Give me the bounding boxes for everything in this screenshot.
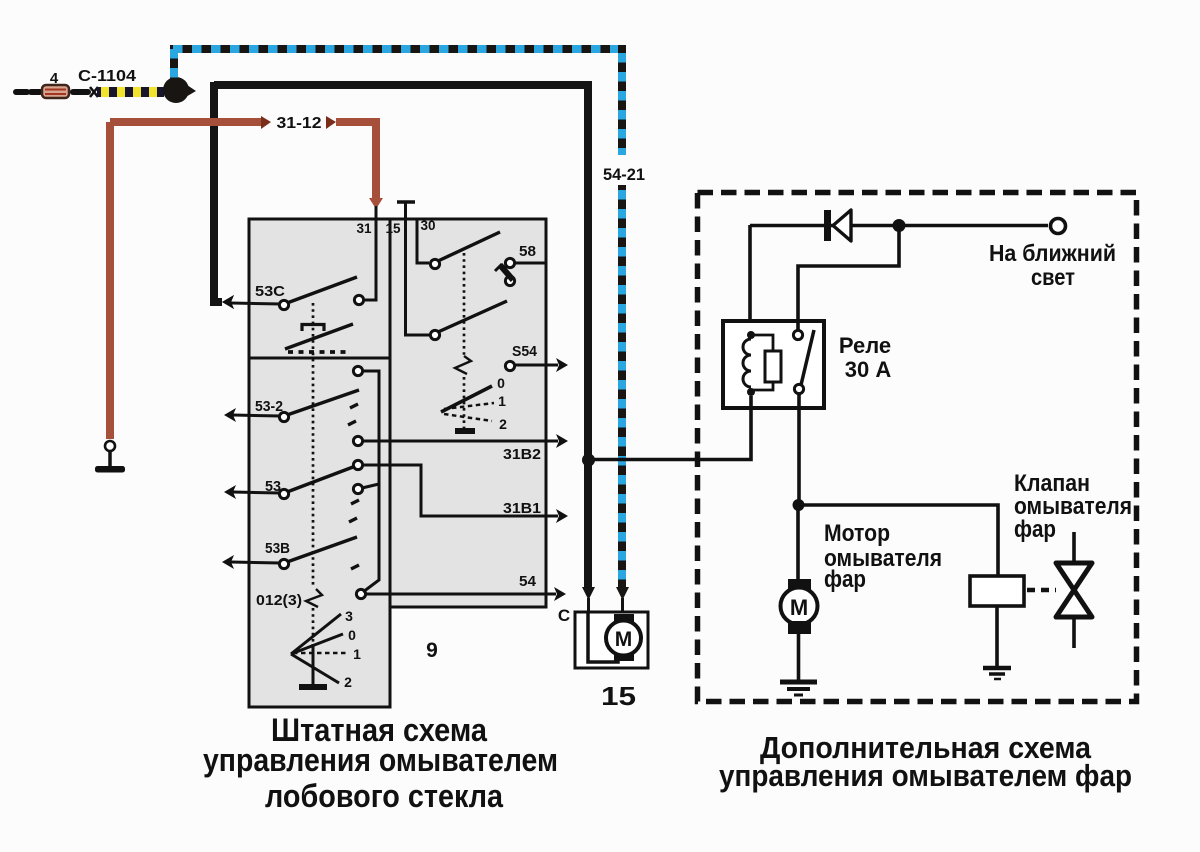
svg-text:53C: 53C [255, 283, 285, 300]
svg-text:0: 0 [497, 375, 505, 391]
svg-text:2: 2 [499, 416, 507, 432]
svg-text:012(3): 012(3) [256, 592, 302, 609]
svg-text:53-2: 53-2 [255, 398, 283, 415]
svg-text:30 А: 30 А [845, 357, 892, 382]
svg-text:M: M [615, 628, 633, 651]
svg-text:30: 30 [420, 218, 435, 233]
svg-text:На ближний: На ближний [989, 240, 1116, 266]
svg-text:фар: фар [1014, 516, 1056, 543]
svg-text:53B: 53B [265, 540, 290, 557]
svg-text:управления омывателем: управления омывателем [203, 742, 558, 778]
svg-text:лобового стекла: лобового стекла [265, 778, 503, 814]
svg-text:фар: фар [824, 566, 866, 593]
svg-text:Реле: Реле [839, 333, 891, 358]
svg-text:2: 2 [344, 674, 352, 690]
svg-text:3: 3 [345, 608, 353, 624]
svg-text:0: 0 [348, 627, 356, 643]
svg-text:4: 4 [50, 70, 59, 87]
svg-text:S54: S54 [512, 344, 537, 360]
svg-text:1: 1 [498, 393, 506, 409]
svg-text:управления омывателем фар: управления омывателем фар [719, 758, 1132, 793]
svg-text:1: 1 [353, 646, 361, 662]
svg-text:31-12: 31-12 [277, 115, 322, 132]
svg-text:M: M [790, 595, 808, 620]
svg-text:C: C [558, 606, 570, 625]
svg-text:31B2: 31B2 [503, 446, 541, 463]
svg-text:54: 54 [519, 573, 537, 590]
svg-text:C-1104: C-1104 [78, 68, 136, 85]
svg-text:Мотор: Мотор [824, 520, 890, 547]
svg-text:31: 31 [356, 221, 372, 236]
svg-text:9: 9 [426, 639, 438, 662]
svg-text:15: 15 [601, 681, 636, 711]
svg-text:58: 58 [519, 243, 536, 260]
svg-text:31B1: 31B1 [503, 500, 541, 517]
svg-text:15: 15 [385, 221, 401, 236]
svg-text:54-21: 54-21 [603, 165, 645, 184]
svg-text:свет: свет [1031, 264, 1075, 290]
